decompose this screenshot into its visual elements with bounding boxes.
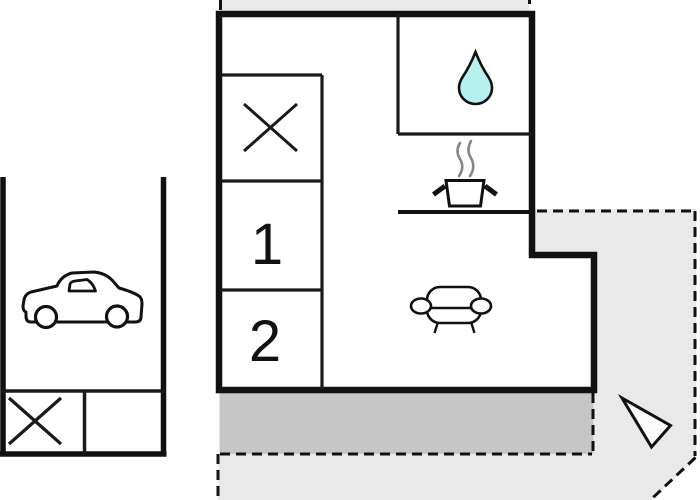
cross-icon <box>9 398 61 444</box>
room-1-label: 1 <box>251 212 283 277</box>
main-building: 1 2 <box>219 14 594 390</box>
car-icon <box>23 272 142 328</box>
sofa-armrest-right <box>471 299 491 314</box>
plot-top-strip <box>222 0 530 12</box>
sofa-armrest-left <box>411 299 431 314</box>
car-wheel-rear <box>107 306 128 327</box>
garage-partitions <box>1 391 166 454</box>
pot-body <box>446 181 484 207</box>
garage <box>0 177 167 454</box>
floorplan-canvas: 1 2 <box>0 0 700 500</box>
floor-plan: 1 2 <box>0 0 700 500</box>
car-wheel-front <box>36 307 57 328</box>
terrace <box>220 391 594 454</box>
room-2-label: 2 <box>249 309 281 374</box>
